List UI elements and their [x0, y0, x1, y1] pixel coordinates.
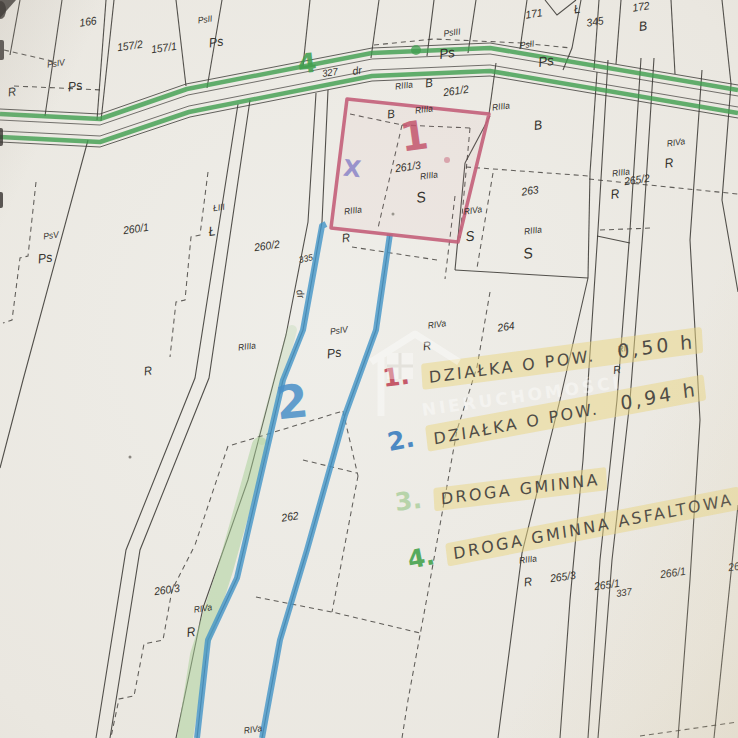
- marker-X: X: [342, 157, 362, 182]
- map-markers-layer: 41X2: [0, 0, 738, 738]
- marker-4: 4: [296, 49, 318, 78]
- marker-2: 2: [274, 377, 311, 426]
- cadastral-map: 166157/2157/1PsIIPsPsIVPsR327dr171Ł34517…: [0, 0, 738, 738]
- marker-1: 1: [397, 114, 430, 157]
